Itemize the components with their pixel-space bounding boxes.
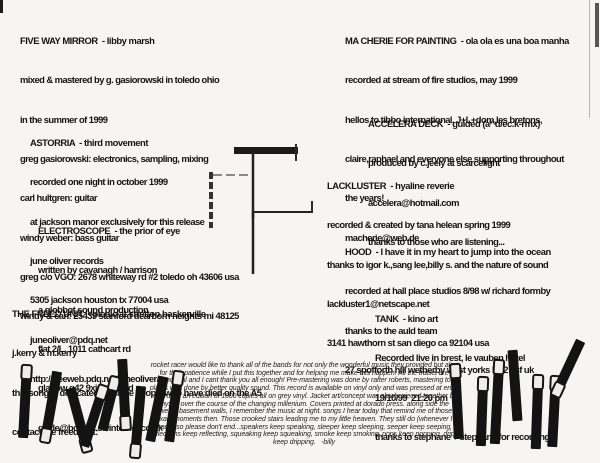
section-line: mixed & mastered by g. gasiorowski in to…: [20, 73, 239, 86]
section-header: TANK - kino art: [375, 312, 550, 325]
section-line: recorded one night in october 1999: [30, 175, 204, 188]
section-header: MA CHERIE FOR PAINTING - ola ola es una …: [345, 34, 569, 47]
abstract-line-drawing: [200, 140, 325, 280]
section-line: written by cavanagh / harrison: [38, 263, 180, 276]
liner-notes-page: FIVE WAY MIRROR - libby marsh mixed & ma…: [0, 0, 600, 463]
section-line: recorded at stream of fire studios, may …: [345, 73, 569, 86]
section-header: HOOD - I have it in my heart to jump int…: [345, 245, 551, 258]
matchstick-drawing: [551, 339, 585, 398]
thank-you-note: rocket racer would like to thank all of …: [148, 362, 460, 447]
section-header: FIVE WAY MIRROR - libby marsh: [20, 34, 239, 47]
section-header: ELECTROSCOPE - the prior of eye: [38, 224, 180, 237]
scan-edge-mark: [0, 0, 3, 13]
scan-edge-line: [589, 0, 590, 118]
scan-edge-smudge: [595, 3, 599, 47]
section-header: THE FREED UNIT - picnic at stretton bask…: [12, 307, 261, 320]
section-line: j.kerry & m.kerry: [12, 346, 261, 359]
section-header: LACKLUSTER - hyaline reverie: [327, 179, 548, 192]
section-header: ACCELERA DECK - guided (a^d/ec.k-rmx): [368, 117, 540, 130]
section-header: ASTORRIA - third movement: [30, 136, 204, 149]
